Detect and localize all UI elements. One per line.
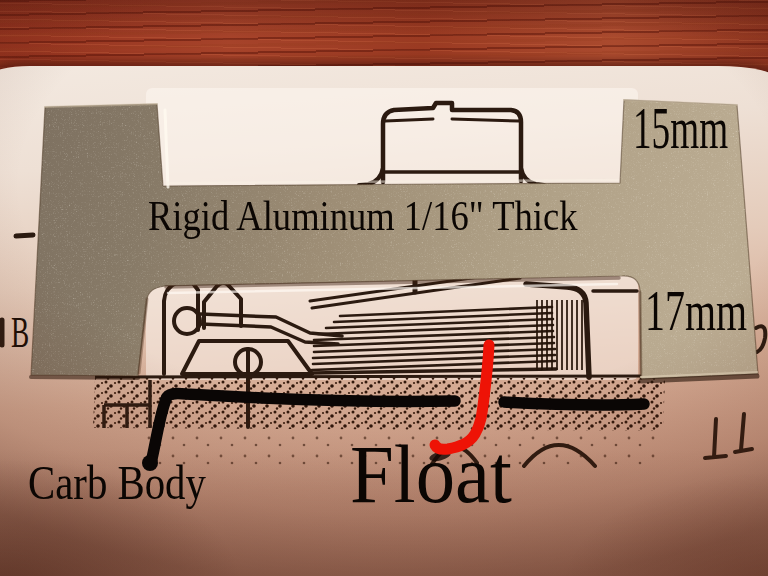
carb-body-label: Carb Body [28, 459, 206, 507]
photo-of-float-gauge: B Rigid [0, 0, 768, 576]
dimension-17mm-label: 17mm [645, 282, 747, 339]
thickness-label: Rigid Aluminum 1/16" Thick [148, 195, 577, 237]
dimension-15mm-label: 15mm [633, 98, 728, 158]
float-label: Float [350, 434, 512, 516]
